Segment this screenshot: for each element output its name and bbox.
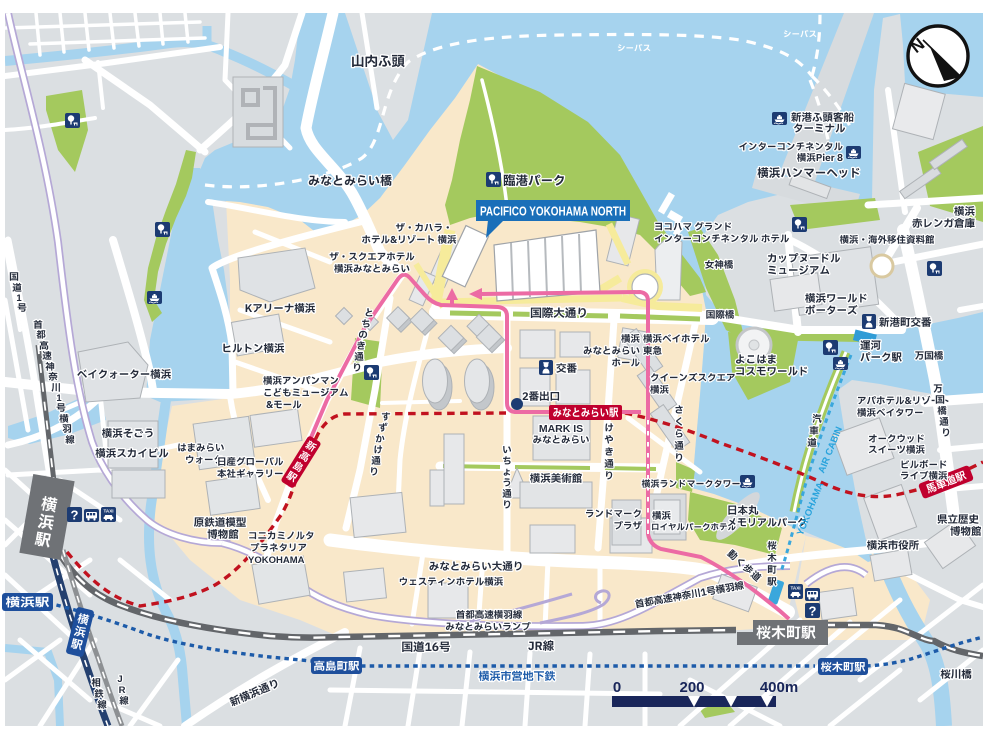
- svg-text:400m: 400m: [760, 679, 798, 696]
- svg-text:YOKOHAMA: YOKOHAMA: [248, 555, 305, 566]
- svg-text:J: J: [117, 674, 122, 685]
- svg-text:R: R: [119, 685, 126, 696]
- svg-text:PACIFICO YOKOHAMA NORTH: PACIFICO YOKOHAMA NORTH: [480, 204, 626, 219]
- svg-text:MARK IS: MARK IS: [539, 423, 583, 435]
- svg-text:200: 200: [679, 679, 704, 696]
- svg-text:0: 0: [613, 679, 621, 696]
